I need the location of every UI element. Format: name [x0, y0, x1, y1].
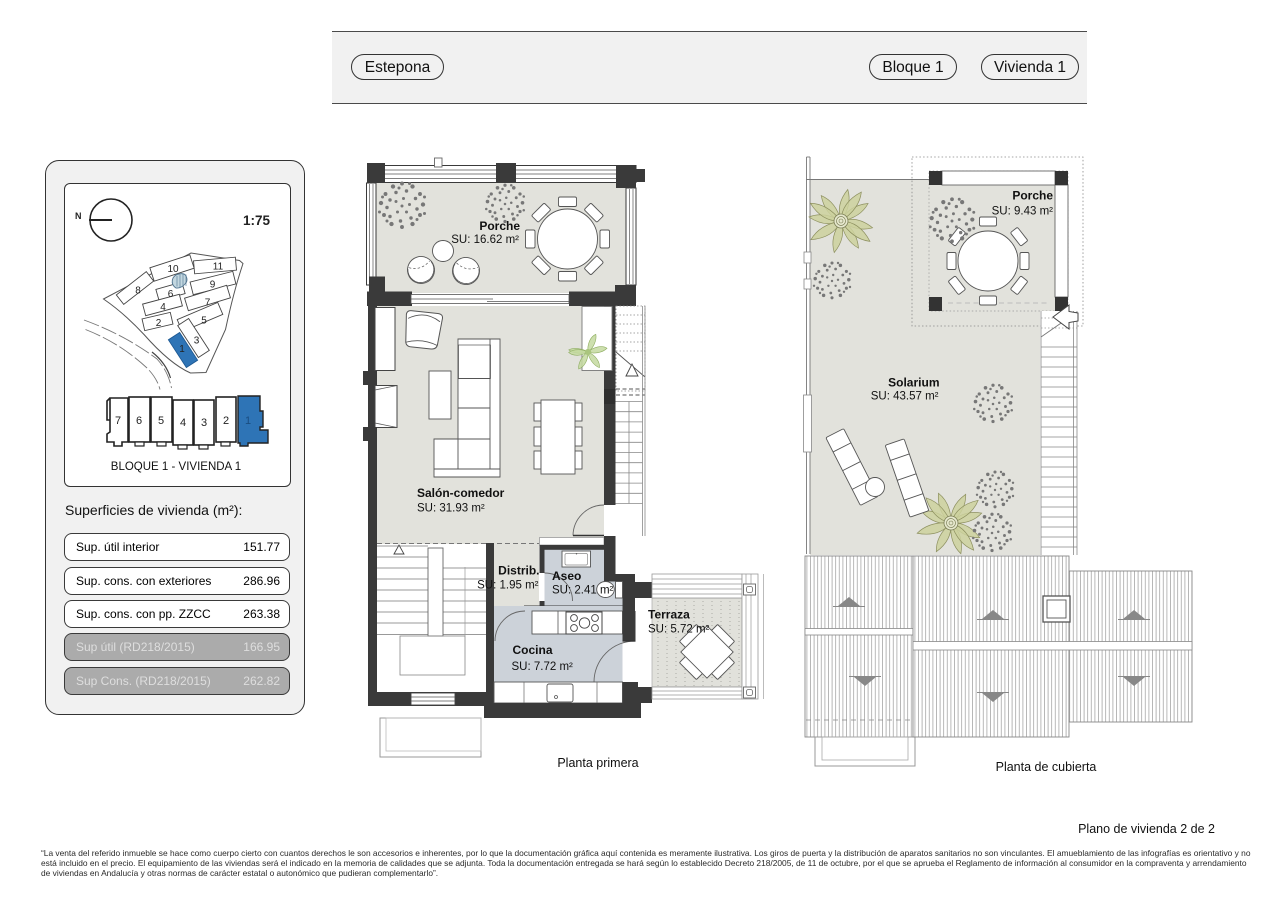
svg-text:5: 5 — [201, 316, 207, 327]
svg-text:2: 2 — [156, 318, 162, 329]
svg-text:3: 3 — [194, 336, 200, 347]
svg-text:BLOQUE 1 - VIVIENDA 1: BLOQUE 1 - VIVIENDA 1 — [111, 461, 241, 473]
svg-text:Distrib.: Distrib. — [498, 564, 539, 578]
svg-text:SU: 43.57 m²: SU: 43.57 m² — [871, 391, 939, 403]
svg-text:Solarium: Solarium — [888, 376, 939, 390]
svg-text:7: 7 — [205, 298, 211, 309]
svg-text:Porche: Porche — [1012, 189, 1053, 203]
svg-text:1: 1 — [245, 415, 251, 427]
svg-text:N: N — [75, 211, 82, 221]
svg-text:SU: 16.62 m²: SU: 16.62 m² — [451, 234, 519, 246]
svg-text:9: 9 — [210, 280, 216, 291]
svg-text:SU: 7.72 m²: SU: 7.72 m² — [512, 661, 574, 673]
svg-text:4: 4 — [160, 302, 166, 313]
svg-text:11: 11 — [213, 262, 224, 273]
svg-text:Cocina: Cocina — [513, 643, 553, 657]
svg-text:Salón-comedor: Salón-comedor — [417, 486, 505, 500]
svg-text:2: 2 — [223, 415, 229, 427]
svg-text:SU: 2.41 m²: SU: 2.41 m² — [552, 585, 614, 597]
svg-text:10: 10 — [167, 264, 179, 275]
svg-text:1:75: 1:75 — [243, 213, 271, 228]
svg-text:Terraza: Terraza — [648, 608, 690, 622]
svg-text:5: 5 — [158, 415, 164, 427]
svg-text:SU: 5.72 m²: SU: 5.72 m² — [648, 624, 710, 636]
svg-text:6: 6 — [168, 289, 174, 300]
svg-text:SU: 9.43 m²: SU: 9.43 m² — [992, 206, 1054, 218]
svg-text:Aseo: Aseo — [552, 569, 581, 583]
svg-text:7: 7 — [115, 415, 121, 427]
svg-text:1: 1 — [179, 344, 185, 355]
svg-text:6: 6 — [136, 415, 142, 427]
svg-text:Porche: Porche — [479, 219, 520, 233]
svg-text:3: 3 — [201, 417, 207, 429]
svg-text:SU: 31.93 m²: SU: 31.93 m² — [417, 503, 485, 515]
svg-text:4: 4 — [180, 417, 186, 429]
svg-text:SU: 1.95 m²: SU: 1.95 m² — [477, 580, 539, 592]
svg-text:8: 8 — [135, 286, 141, 297]
